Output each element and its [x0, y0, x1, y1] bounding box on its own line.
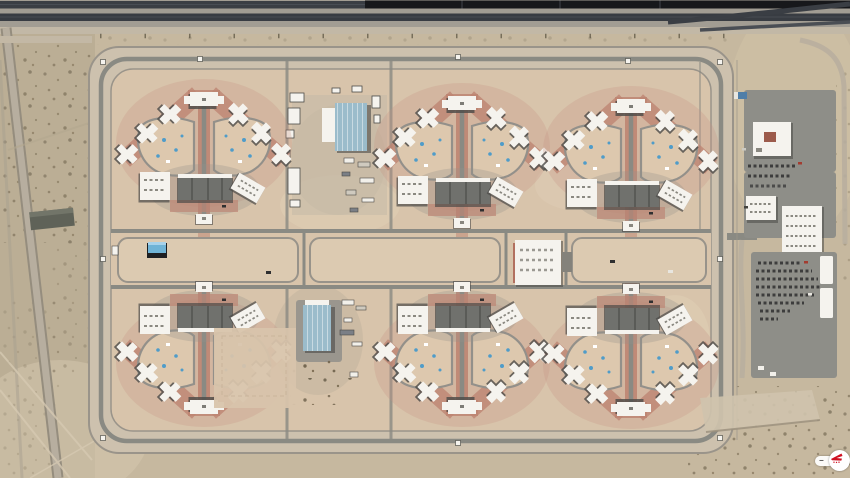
logo-badge[interactable] [829, 450, 850, 471]
unbuilt-graded-pad [214, 328, 296, 408]
aerial-photo-scene [0, 0, 850, 478]
visitor-center [753, 122, 793, 159]
carport-canopy [820, 256, 833, 284]
central-corridor [111, 229, 711, 289]
corridor-utility-building [147, 242, 167, 258]
freight-train [365, 1, 850, 9]
zoom-out-button[interactable]: − [819, 457, 824, 465]
staff-parking-lot [741, 240, 837, 378]
admin-building-small [746, 196, 778, 223]
service-vehicle [112, 246, 118, 255]
warehouse-blue-bottom [303, 300, 335, 353]
carport-canopy [820, 288, 833, 318]
railroad-tracks [0, 0, 850, 36]
compass-logo-icon [829, 450, 844, 465]
support-yard-top [284, 86, 387, 215]
satellite-map-view: − + [0, 0, 850, 478]
admin-building-large [782, 206, 824, 257]
